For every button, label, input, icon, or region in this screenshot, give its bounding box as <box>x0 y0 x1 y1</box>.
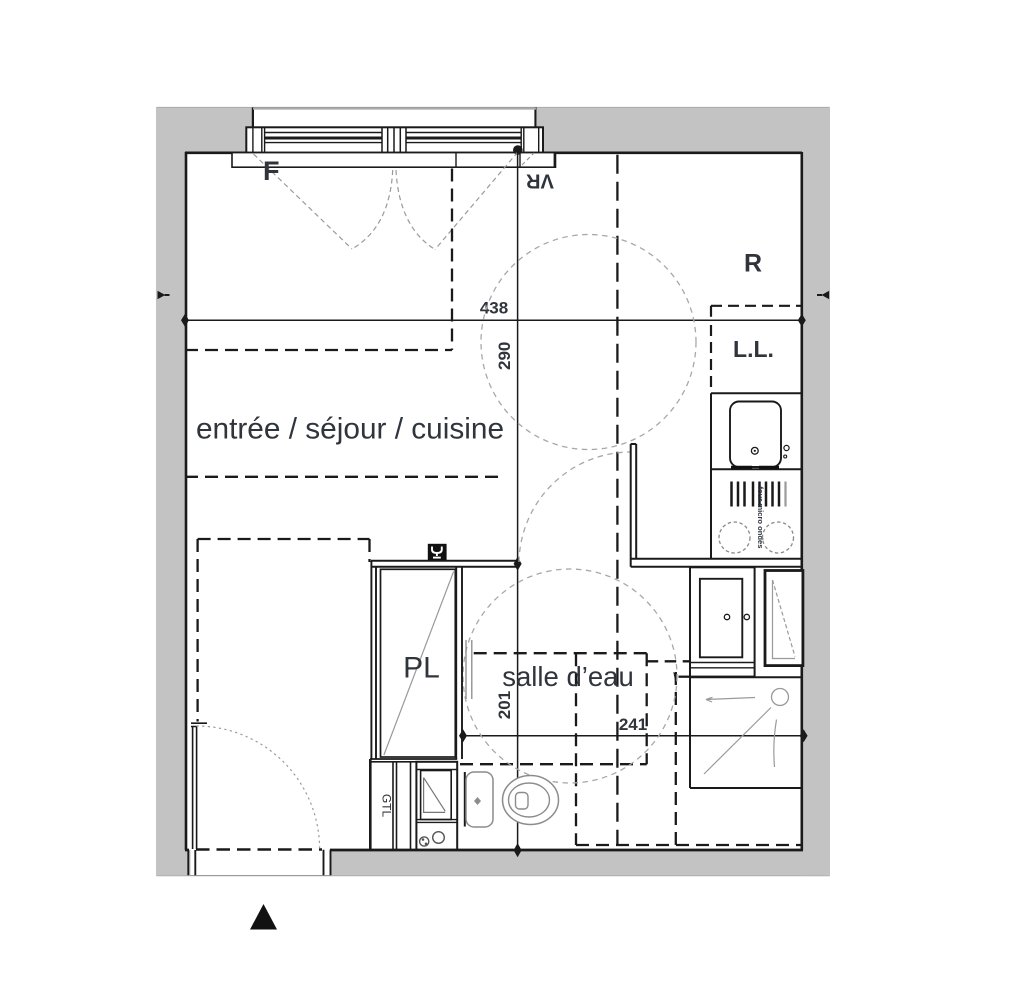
svg-text:R: R <box>744 250 762 278</box>
svg-text:201: 201 <box>495 691 514 719</box>
svg-text:salle d’eau: salle d’eau <box>502 661 633 692</box>
svg-text:F: F <box>263 156 280 186</box>
svg-text:entrée / séjour / cuisine: entrée / séjour / cuisine <box>196 413 504 446</box>
svg-text:four micro ondes: four micro ondes <box>756 486 765 548</box>
svg-text:VR: VR <box>526 170 554 192</box>
svg-text:241: 241 <box>619 715 647 734</box>
svg-text:L.L.: L.L. <box>733 336 774 362</box>
svg-text:290: 290 <box>495 342 514 370</box>
svg-text:GTL: GTL <box>380 794 394 818</box>
svg-text:PL: PL <box>403 652 440 685</box>
